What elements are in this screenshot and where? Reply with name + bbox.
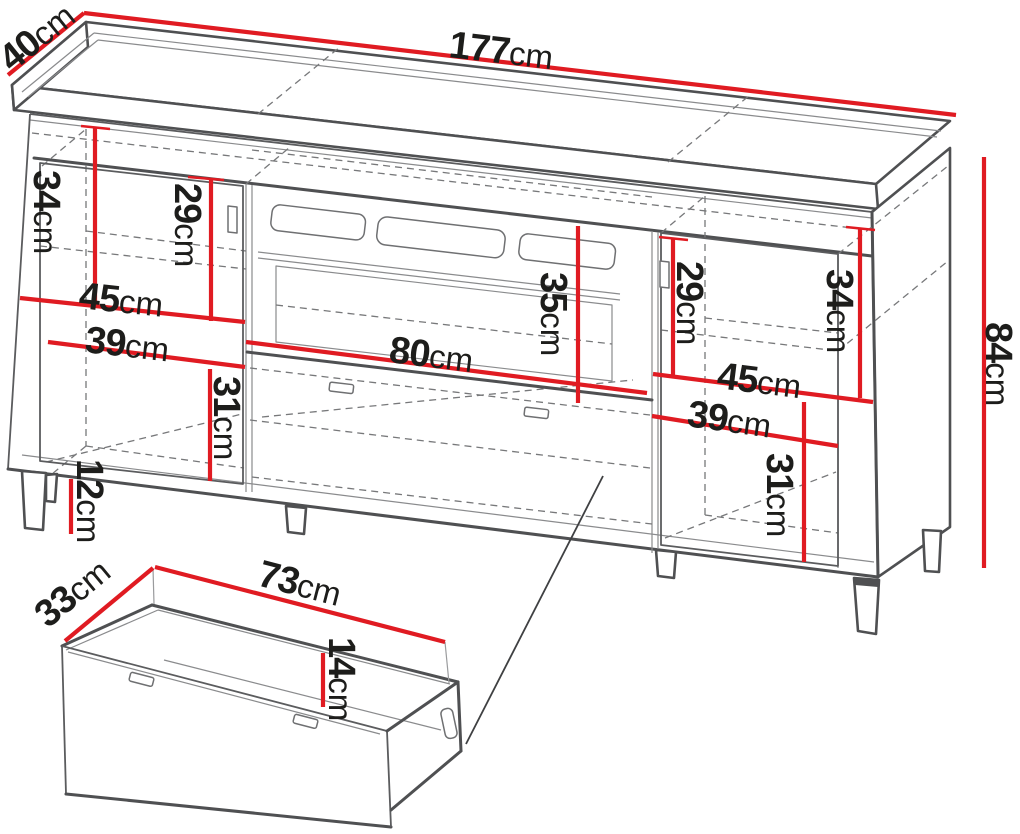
label-left-29: 29cm <box>166 183 208 267</box>
label-drawer-33: 33cm <box>27 550 119 636</box>
label-left-34: 34cm <box>25 170 67 254</box>
label-niche-80: 80cm <box>387 329 476 381</box>
label-drawer-14: 14cm <box>320 637 362 721</box>
leg-center-left <box>286 506 306 534</box>
label-left-31: 31cm <box>205 376 247 460</box>
cabinet-drawing <box>8 22 950 634</box>
label-niche-35: 35cm <box>532 272 574 356</box>
label-right-34: 34cm <box>818 269 860 353</box>
label-height-84: 84cm <box>977 322 1019 406</box>
fireplace-niche <box>247 204 652 468</box>
vent-slot-1 <box>270 204 366 241</box>
label-leg-12: 12cm <box>68 459 110 543</box>
drawer-side-slot <box>440 708 458 740</box>
furniture-dimension-diagram: 40cm 177cm 84cm 34cm 29cm 45cm 39cm 31cm… <box>0 0 1020 834</box>
vent-slot-2 <box>376 216 506 259</box>
center-drawer-handle-1 <box>329 382 354 394</box>
right-side-panel <box>872 148 950 577</box>
drawer-detail-drawing <box>62 568 461 827</box>
label-right-29: 29cm <box>668 261 710 345</box>
label-left-45: 45cm <box>77 275 165 326</box>
center-drawer-handle-2 <box>524 407 549 419</box>
leg-center-right <box>656 550 676 578</box>
label-right-39: 39cm <box>685 393 774 446</box>
leg-back-right <box>923 530 941 572</box>
left-door-handle <box>228 206 237 233</box>
label-right-31: 31cm <box>758 453 800 537</box>
drawer-detail-pointer-line <box>466 476 603 744</box>
leg-front-left <box>22 471 46 530</box>
vent-slot-3 <box>518 233 616 270</box>
right-door-handle <box>660 261 669 288</box>
label-left-39: 39cm <box>83 319 171 370</box>
